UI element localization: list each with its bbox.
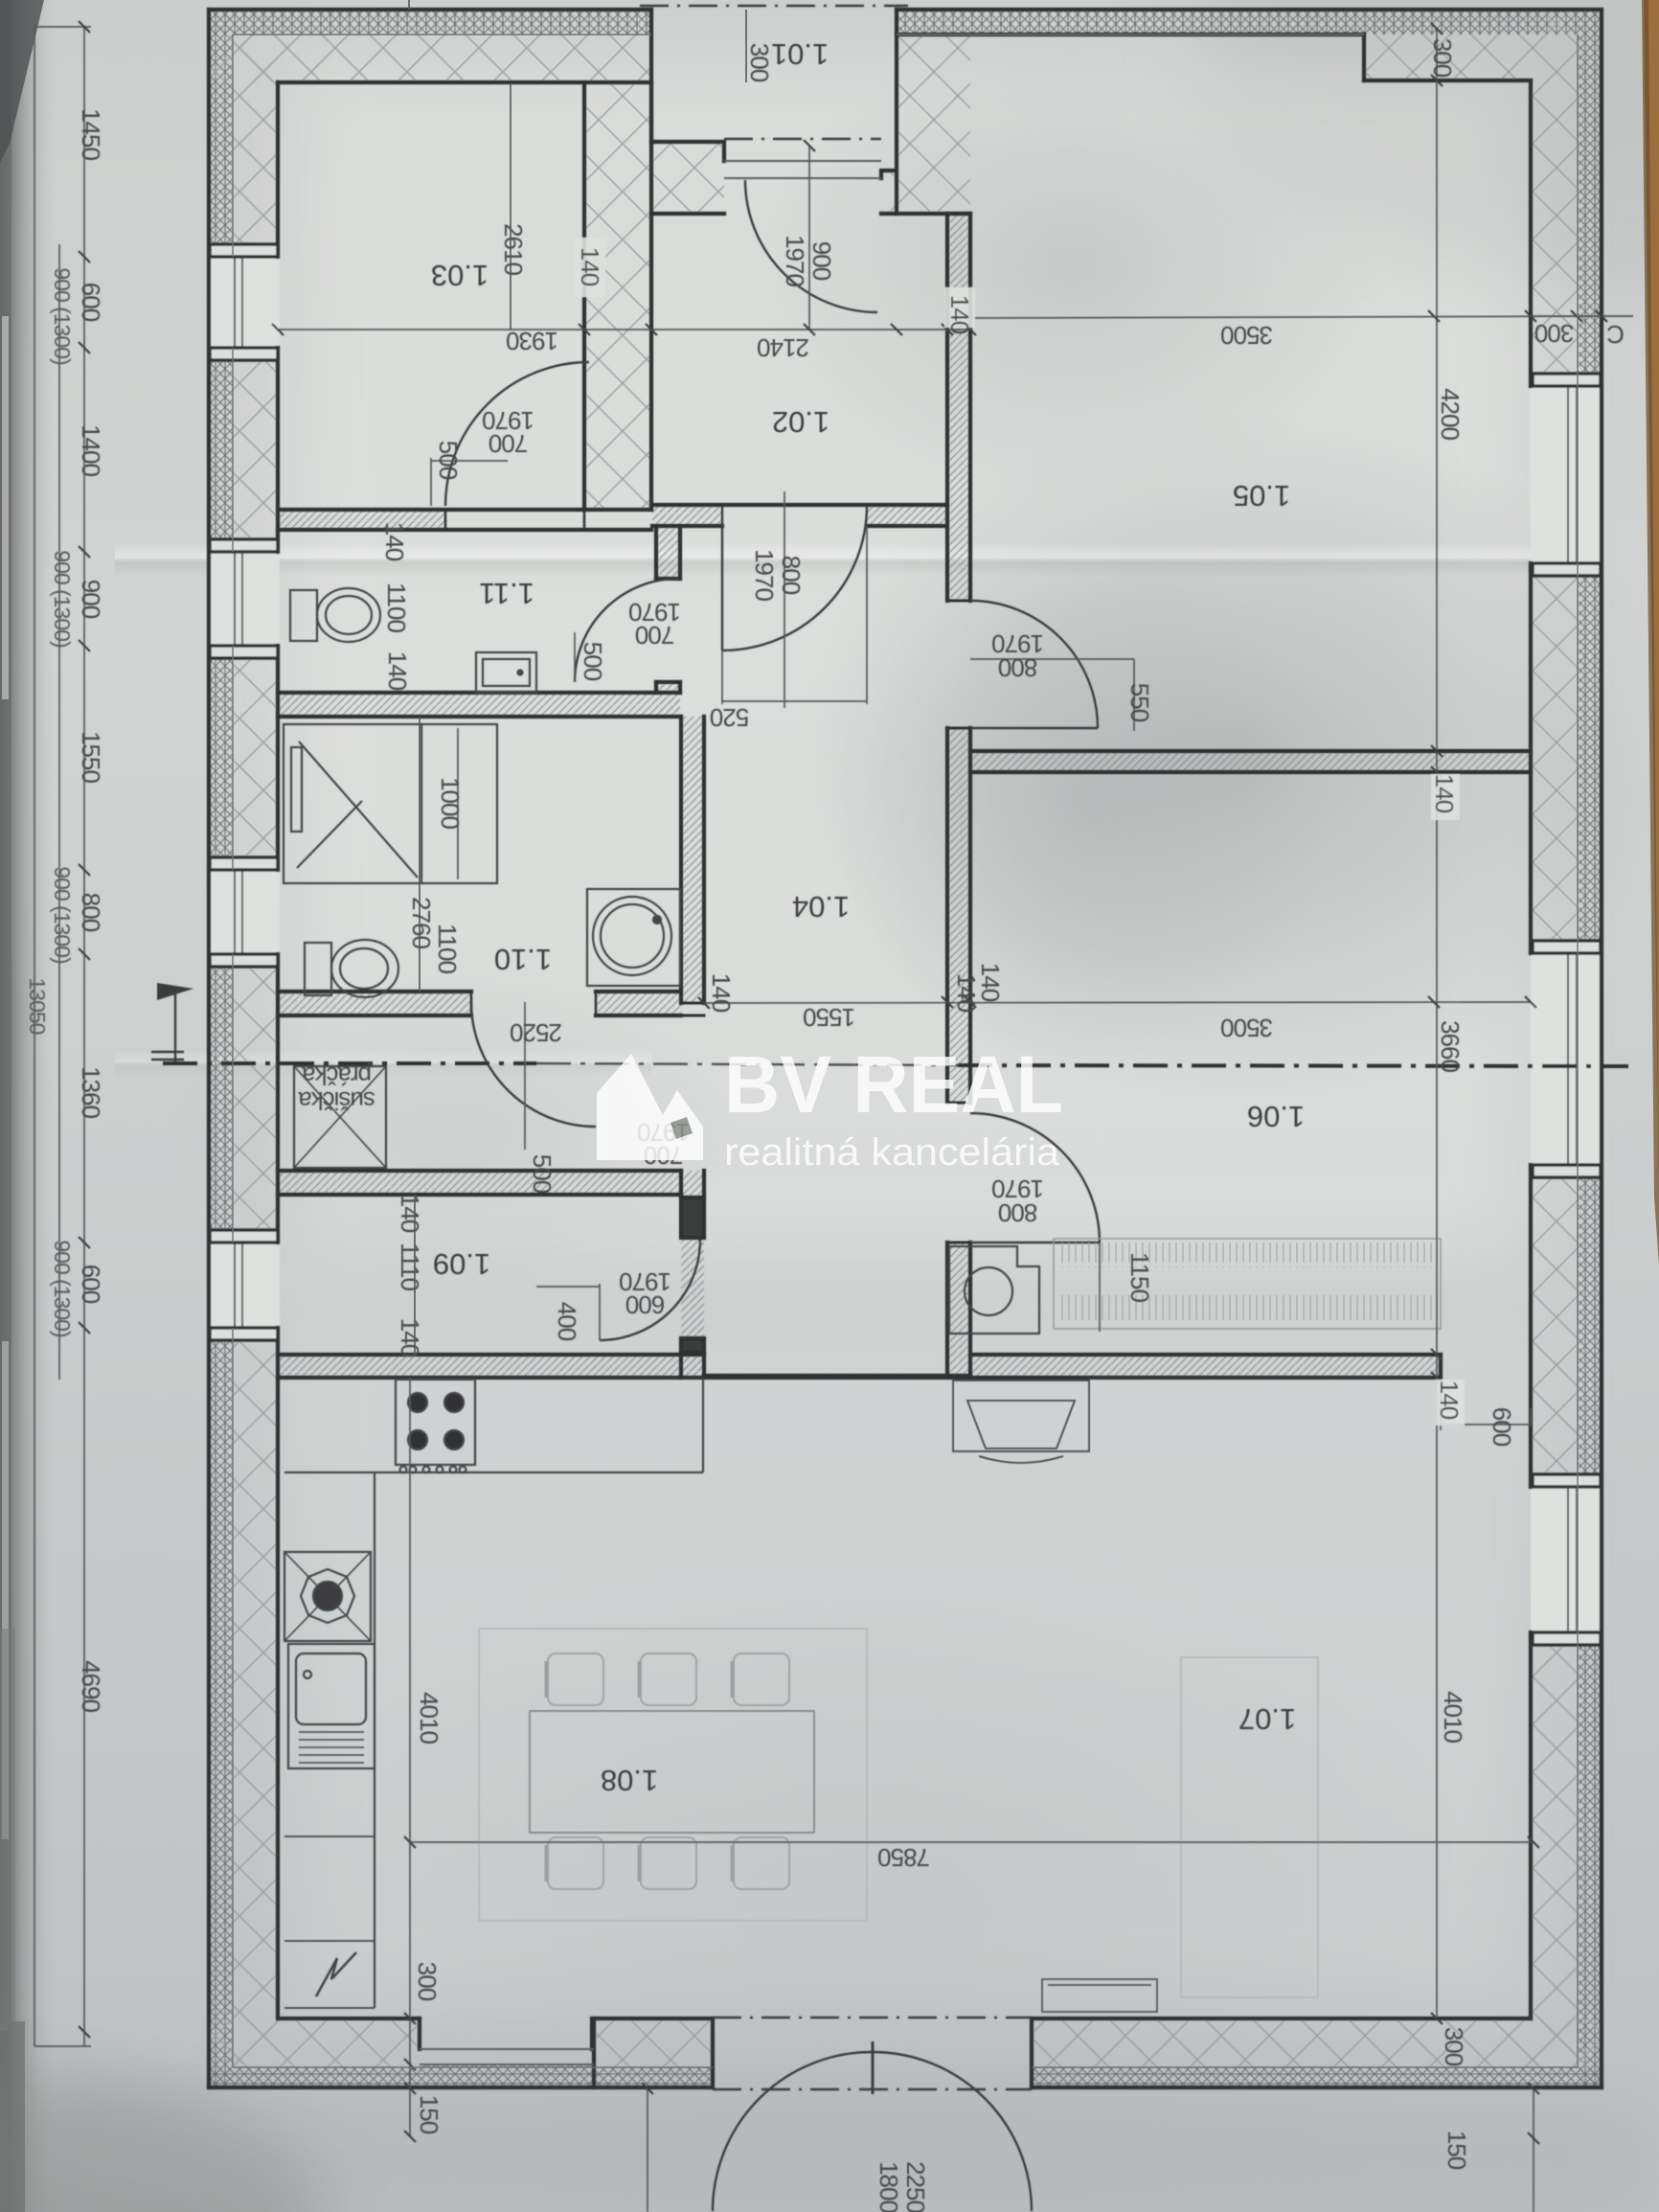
svg-text:600: 600 (1488, 1407, 1516, 1447)
svg-text:2760: 2760 (407, 897, 436, 948)
svg-text:800: 800 (77, 893, 105, 932)
svg-text:300: 300 (1428, 38, 1457, 78)
svg-text:3500: 3500 (1221, 321, 1273, 350)
svg-text:1970: 1970 (750, 549, 779, 601)
svg-text:1400: 1400 (77, 424, 105, 476)
svg-text:1.07: 1.07 (1239, 1702, 1296, 1736)
svg-text:140: 140 (576, 247, 604, 286)
svg-text:140: 140 (396, 1194, 424, 1233)
svg-text:900 (1300): 900 (1300) (50, 866, 75, 964)
svg-text:sušička: sušička (298, 1086, 375, 1115)
svg-text:2140: 2140 (758, 333, 809, 362)
svg-text:práčka: práčka (301, 1061, 372, 1090)
svg-text:1.06: 1.06 (1247, 1100, 1305, 1133)
svg-text:3500: 3500 (1221, 1014, 1273, 1042)
svg-text:140: 140 (1435, 1380, 1464, 1420)
svg-text:500: 500 (528, 1154, 557, 1194)
svg-text:1.02: 1.02 (772, 405, 829, 439)
svg-text:1970: 1970 (781, 235, 809, 286)
svg-text:140: 140 (945, 295, 974, 334)
svg-text:4200: 4200 (1436, 388, 1465, 440)
svg-text:7850: 7850 (878, 1843, 930, 1872)
svg-text:800: 800 (998, 1198, 1037, 1227)
svg-text:140: 140 (707, 973, 736, 1013)
svg-text:4010: 4010 (1439, 1691, 1467, 1743)
svg-text:4690: 4690 (77, 1660, 105, 1712)
svg-text:150: 150 (1443, 2131, 1471, 2170)
svg-text:150: 150 (415, 2095, 443, 2134)
svg-text:900 (1300): 900 (1300) (50, 1240, 75, 1337)
svg-text:1450: 1450 (77, 108, 105, 160)
svg-text:140: 140 (1430, 774, 1459, 813)
svg-text:500: 500 (434, 441, 463, 480)
svg-text:2610: 2610 (499, 223, 528, 275)
svg-text:600: 600 (77, 283, 105, 322)
svg-text:realitná kancelária: realitná kancelária (724, 1131, 1060, 1174)
svg-text:1150: 1150 (1125, 1252, 1154, 1302)
svg-text:800: 800 (777, 556, 806, 595)
svg-text:3660: 3660 (1436, 1020, 1465, 1072)
svg-text:1000: 1000 (436, 777, 465, 829)
svg-text:900: 900 (77, 580, 105, 619)
svg-text:1.03: 1.03 (431, 259, 489, 292)
svg-text:1.08: 1.08 (601, 1764, 658, 1797)
svg-text:1550: 1550 (77, 731, 105, 783)
svg-text:1.04: 1.04 (792, 890, 850, 924)
svg-text:BV REAL: BV REAL (724, 1039, 1063, 1129)
svg-text:1800: 1800 (875, 2161, 903, 2212)
svg-text:600: 600 (625, 1290, 665, 1319)
svg-text:900 (1300): 900 (1300) (50, 550, 75, 648)
svg-text:1.11: 1.11 (479, 577, 534, 610)
svg-text:C: C (1607, 320, 1625, 349)
svg-text:140: 140 (396, 1318, 424, 1357)
svg-text:1110: 1110 (396, 1243, 424, 1291)
svg-text:1360: 1360 (77, 1066, 105, 1118)
svg-text:140: 140 (383, 651, 412, 691)
svg-text:1.09: 1.09 (433, 1247, 490, 1281)
svg-text:600: 600 (77, 1265, 105, 1304)
svg-text:300: 300 (1534, 319, 1574, 348)
svg-text:900 (1300): 900 (1300) (50, 267, 75, 365)
svg-text:1100: 1100 (382, 582, 411, 632)
svg-text:1550: 1550 (804, 1003, 855, 1032)
svg-text:140: 140 (380, 522, 409, 561)
svg-text:2250: 2250 (901, 2161, 930, 2212)
svg-text:520: 520 (710, 703, 749, 732)
svg-text:550: 550 (1125, 683, 1154, 722)
svg-text:4010: 4010 (415, 1692, 443, 1744)
svg-text:300: 300 (745, 43, 774, 82)
svg-text:1100: 1100 (433, 924, 462, 973)
svg-text:13050: 13050 (25, 978, 50, 1035)
svg-text:1.05: 1.05 (1233, 479, 1290, 513)
svg-text:1.01: 1.01 (771, 37, 829, 71)
svg-text:1.10: 1.10 (494, 943, 552, 976)
svg-text:700: 700 (489, 429, 528, 458)
svg-text:2520: 2520 (511, 1018, 562, 1047)
svg-text:300: 300 (1440, 2027, 1468, 2066)
svg-text:700: 700 (635, 621, 674, 650)
svg-text:900: 900 (807, 241, 836, 281)
svg-text:400: 400 (553, 1302, 581, 1341)
svg-text:300: 300 (413, 1962, 442, 2001)
svg-text:140: 140 (952, 973, 981, 1013)
svg-text:800: 800 (998, 653, 1037, 682)
svg-text:1930: 1930 (507, 327, 558, 355)
svg-text:500: 500 (579, 642, 607, 681)
